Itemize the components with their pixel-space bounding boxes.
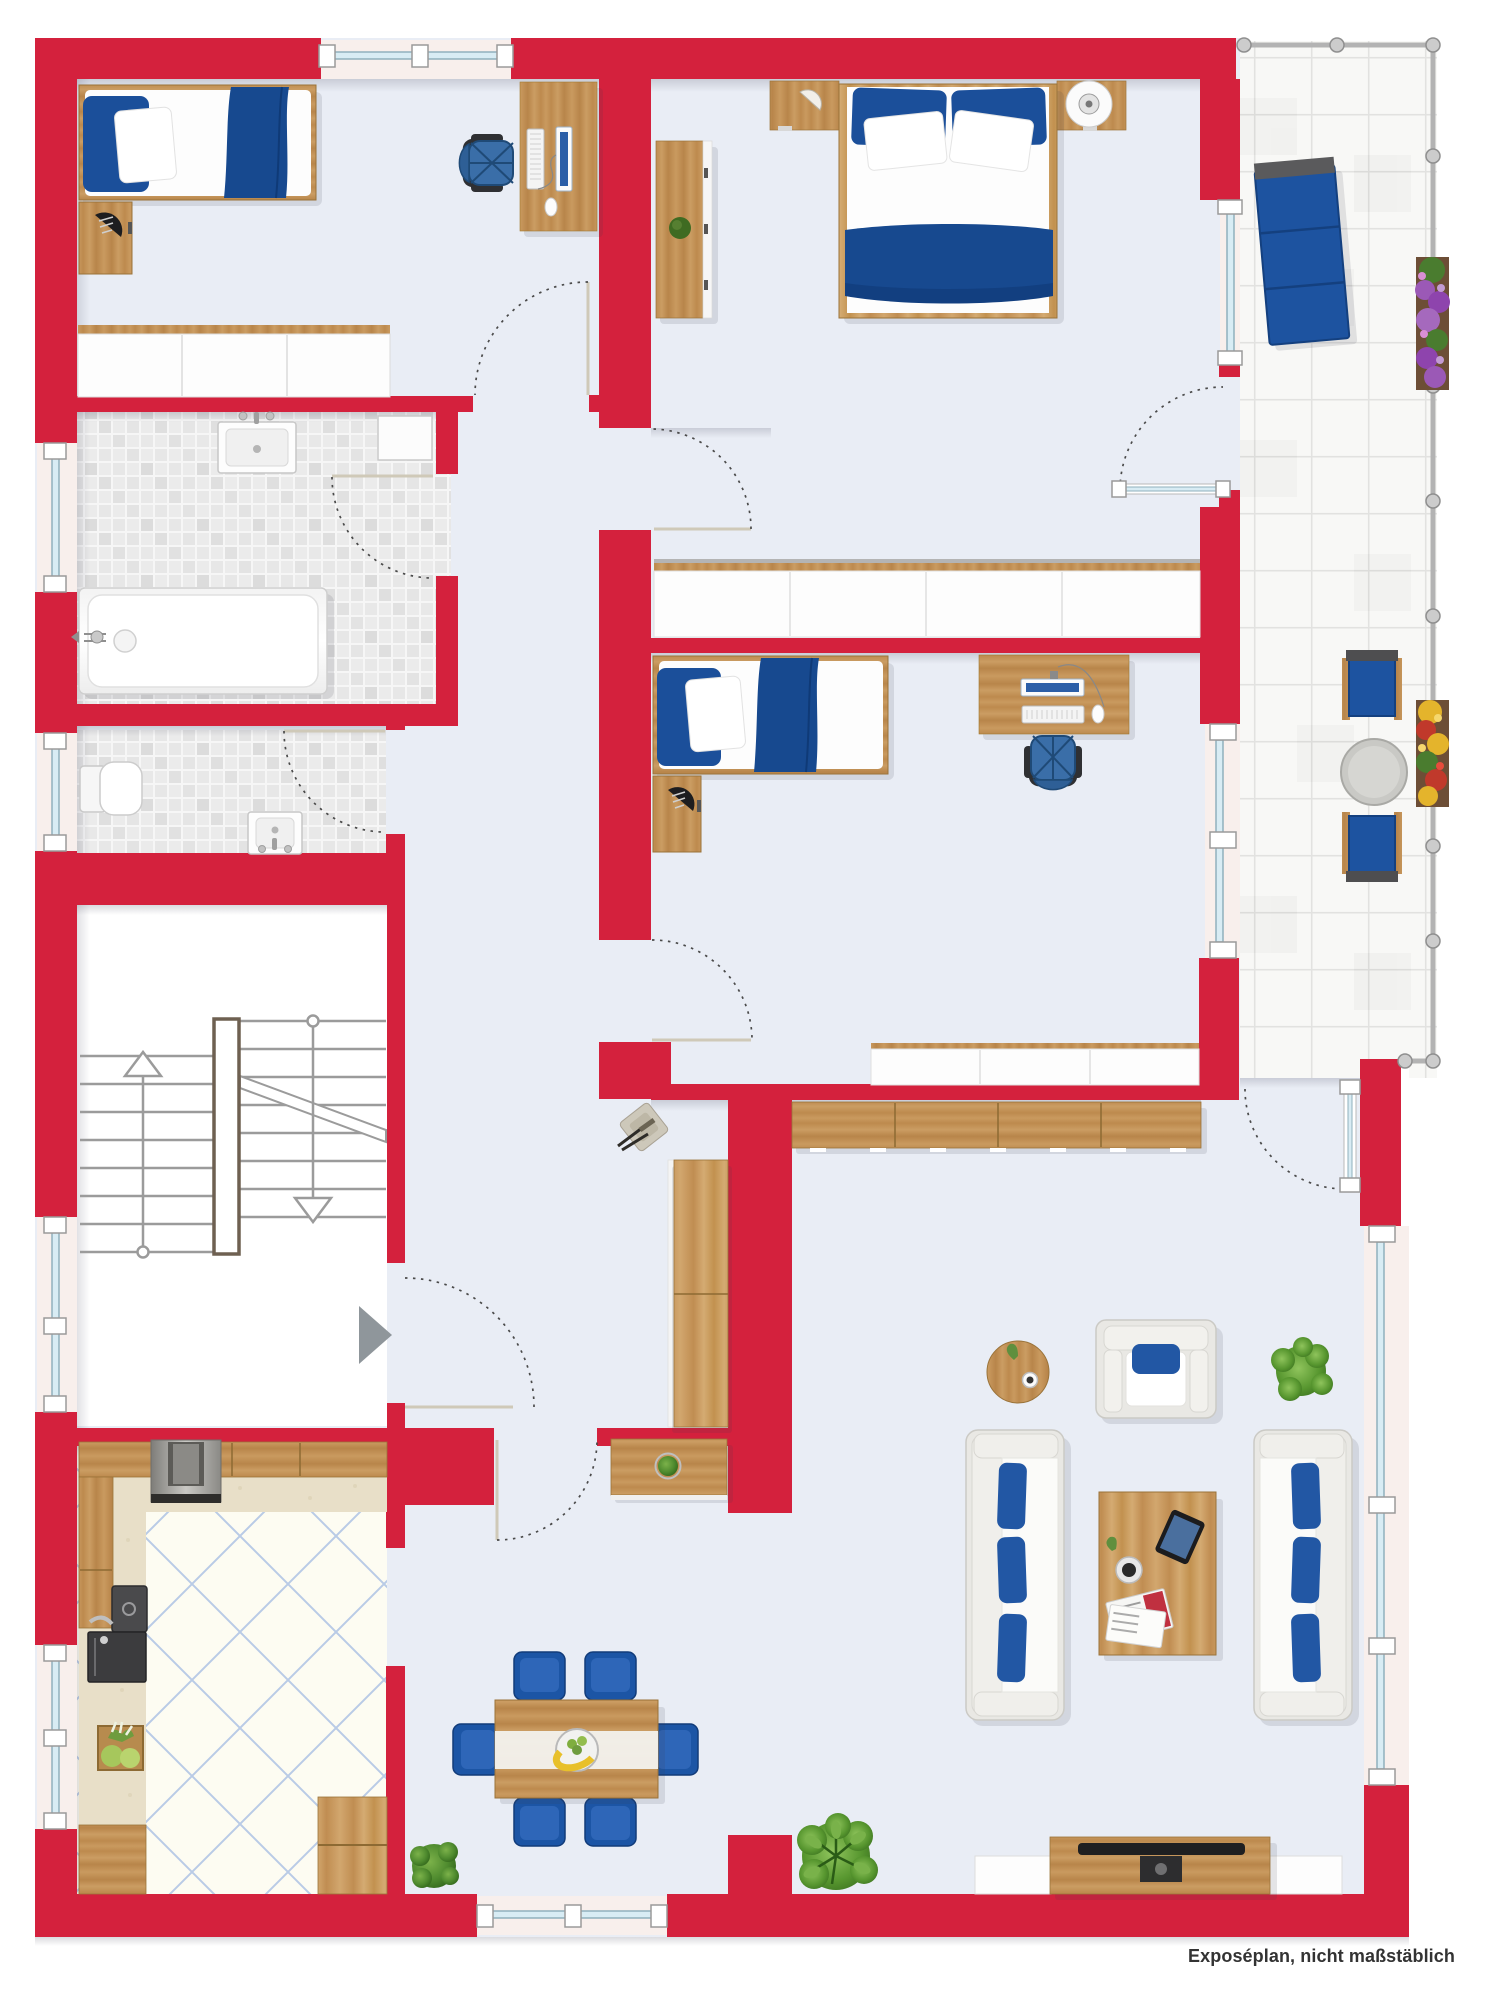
svg-text:Exposéplan, nicht maßstäblich: Exposéplan, nicht maßstäblich — [1188, 1946, 1455, 1966]
